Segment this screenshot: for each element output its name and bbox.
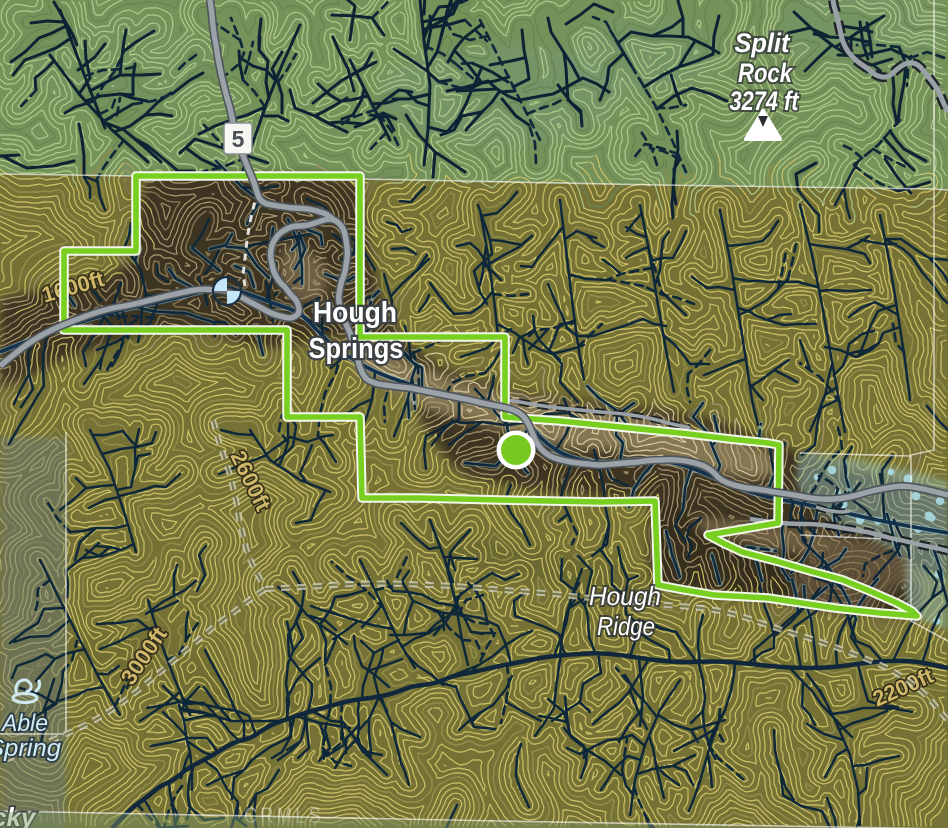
svg-text:Rock: Rock [738,58,794,88]
svg-text:Spring: Spring [0,735,62,762]
svg-text:Hough: Hough [589,581,661,611]
svg-text:Split: Split [735,28,791,58]
svg-text:3274 ft: 3274 ft [730,86,800,116]
svg-text:Ridge: Ridge [597,611,655,641]
svg-text:Springs: Springs [309,333,404,365]
svg-text:Hough: Hough [313,297,397,329]
svg-text:Able: Able [0,710,48,737]
svg-text:5: 5 [232,126,245,152]
